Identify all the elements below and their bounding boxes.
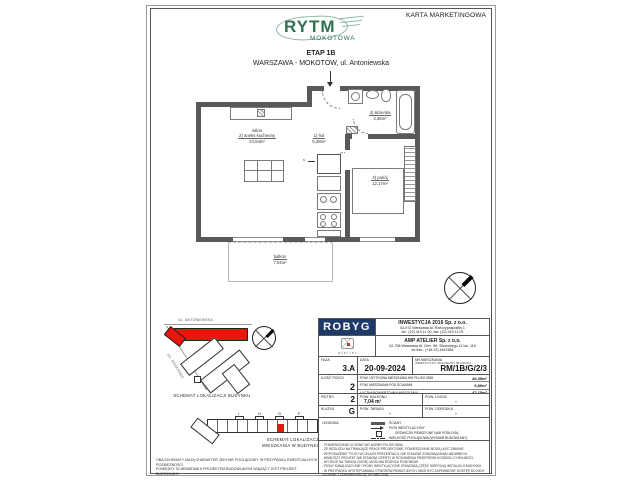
faza-label: FAZA [319, 357, 357, 362]
area-row-2-label: POW. MIESZKANIA POD ŚCIANAMI [360, 383, 412, 387]
pokoj-area: 12,17m² [372, 181, 388, 186]
unit-plan-caption-2: MIESZKANIA W BUDYNKU [258, 443, 320, 448]
building-strip [207, 419, 318, 433]
kitchen-sink-bowl-1 [320, 196, 327, 203]
robyg-logo: ROBYG [318, 318, 376, 336]
wardrobe-mark-arrow [308, 161, 315, 162]
wall-hol-pokoj-1 [345, 139, 350, 150]
schemes-note-line-1: OBA SCHEMATY MAJĄ CHARAKTER JEDYNIE POGL… [156, 458, 318, 467]
card-type-label: KARTA MARKETINGOWA [368, 12, 486, 19]
lazienka-area: 4,36m² [373, 116, 386, 121]
area-row-1: POW. UŻYTKOWA MIESZKANIA WG PN-ISO 9836 … [358, 375, 489, 382]
area-row-2: POW. MIESZKANIA POD ŚCIANAMI 0,80m² [358, 382, 489, 389]
pokoj-label: 3) pokój 12,17m² [360, 175, 400, 186]
area-row-1-value: 46,35m² [472, 376, 487, 381]
logo-text-rytm: RYTM [284, 18, 336, 35]
unit-plan-caption-1: SCHEMAT LOKALIZACJI [258, 437, 320, 442]
disclaimer-7: W PRZYPADKU WYSTĘPOWANIA OTWORÓW REWIZYJ… [322, 469, 486, 478]
toilet [381, 89, 391, 102]
stove-burner-4 [331, 221, 337, 227]
salon-label: salon 2) aneks kuchenny 24,54m² [221, 128, 293, 145]
entrance-arrow-head [327, 82, 333, 87]
revision-door-icon [376, 431, 382, 437]
pietro-value: 2 [351, 395, 355, 404]
stove-burner-2 [331, 214, 337, 220]
areas-cell: POW. UŻYTKOWA MIESZKANIA WG PN-ISO 9836 … [357, 374, 490, 394]
wall-hol-pokoj-2 [345, 170, 350, 237]
location-label: WARSZAWA - MOKOTÓW, ul. Antoniewska [150, 60, 492, 67]
site-plan: UL. ANTONIEWSKA UL. GOŚCINIEC SCHEMAT LO… [158, 318, 262, 400]
logo-wave-1 [338, 16, 364, 20]
nr-value: RM/1B/G/2/3 [440, 364, 487, 373]
data-label: DATA [358, 357, 412, 362]
wall-left [196, 102, 201, 242]
site-compass-icon [252, 326, 276, 350]
klatka-value: G [349, 407, 355, 416]
unit-location-plan: I H G F SCHEMAT LOKALIZACJI MIESZKANIA W… [205, 411, 320, 453]
north-compass-icon [444, 272, 476, 304]
site-compass-needle [265, 329, 274, 338]
wall-bottom-4 [395, 237, 420, 242]
atelier-logo-text: atelier [319, 351, 377, 355]
disclaimer-2: ZE WZGLĘDU NA TRWAJĄCE PRACE PROJEKTOWE,… [322, 447, 486, 451]
faza-cell: FAZA 3.A [318, 356, 358, 375]
entrance-arrow-line [330, 71, 331, 82]
etap-label: ETAP 1B [150, 50, 492, 57]
hall-wardrobe [317, 154, 341, 174]
washing-machine-drum [351, 92, 360, 101]
atelier-roof-icon [341, 338, 354, 349]
wall-bath-bottom-2 [368, 134, 420, 139]
kitchen-cabinet [317, 230, 341, 237]
hol-area: 5,28m² [312, 139, 325, 144]
nr-mieszkania-cell: NR MIESZKANIA (INWESTYCYJNY / BUDOWLANY … [412, 356, 490, 375]
window-pokoj [360, 237, 395, 242]
rytm-mokotowa-logo: RYTM MOKOTOWA [276, 13, 368, 45]
logo-text-mokotowa: MOKOTOWA [310, 35, 355, 42]
schemes-note-line-2: POMIĘDZY SCHEMATAMI A PROJEKTEM BUDOWLAN… [156, 467, 318, 476]
building-small [194, 376, 201, 383]
pokoj-wardrobe [404, 146, 416, 202]
vent-arrow-icon [371, 428, 381, 429]
pokoi-cell: ILOŚĆ POKOI 2 [318, 374, 358, 394]
bathtub-inner [399, 94, 412, 130]
stove-burner-1 [320, 214, 326, 220]
data-cell: DATA 20-09-2024 [357, 356, 413, 375]
kitchen-sink-bowl-2 [330, 196, 337, 203]
highlighted-unit [277, 424, 284, 432]
salon-area: 24,54m² [249, 139, 265, 144]
legend-label: LEGENDA [322, 421, 339, 425]
legend-items: ŚCIANY PION WENTYLACYJNY DRZWICZKI REWIZ… [371, 421, 489, 441]
atelier-logo-cell: atelier [318, 335, 376, 357]
faza-value: 3.A [343, 364, 355, 373]
lazienka-label: 4) łazienka 4,36m² [360, 110, 400, 121]
salon-table [244, 160, 284, 182]
architect-phone: tel./fax.: (+48 22) 4467864 [376, 348, 489, 352]
atelier-red-dot [347, 343, 350, 346]
kitchen-fridge [317, 176, 341, 191]
wardrobe-mark: s [303, 158, 305, 162]
compass-needle [461, 275, 473, 287]
schemes-note: OBA SCHEMATY MAJĄ CHARAKTER JEDYNIE POGL… [156, 458, 318, 476]
architect-cell: AMP ATELIER Sp. z o.o. 02-758 Warszawa A… [375, 335, 490, 357]
balcony-label: balkon 7,04m² [250, 254, 310, 265]
balcony-area: 7,04m² [273, 260, 286, 265]
salon-sideboard-hatch [257, 109, 265, 117]
data-value: 20-09-2024 [358, 364, 412, 373]
disclaimer-box: POWIERZCHNIE LICZONE WG NORMY PN-ISO 983… [318, 440, 490, 474]
washbasin [366, 90, 379, 99]
area-row-1-label: POW. UŻYTKOWA MIESZKANIA WG PN-ISO 9836 [360, 376, 433, 380]
hol-label: 1) hol 5,28m² [300, 133, 338, 144]
legend-box: LEGENDA ŚCIANY PION WENTYLACYJNY DRZWICZ… [318, 417, 490, 441]
marketing-card-page: KARTA MARKETINGOWA RYTM MOKOTOWA ETAP 1B… [0, 0, 640, 480]
site-plan-caption: SCHEMAT LOKALIZACJI BUDYNKU [166, 393, 258, 398]
pokoi-value: 2 [350, 382, 355, 392]
pokoi-label: ILOŚĆ POKOI [319, 375, 357, 380]
stove-burner-3 [320, 221, 326, 227]
street-top-line [164, 324, 252, 325]
area-row-2-value: 0,80m² [474, 383, 487, 388]
wall-swatch-icon [371, 422, 385, 425]
investor-cell: INWESTYCJA 2016 Sp. z o.o. 02-972 Warsza… [375, 318, 490, 336]
street-top-label: UL. ANTONIEWSKA [178, 318, 213, 322]
